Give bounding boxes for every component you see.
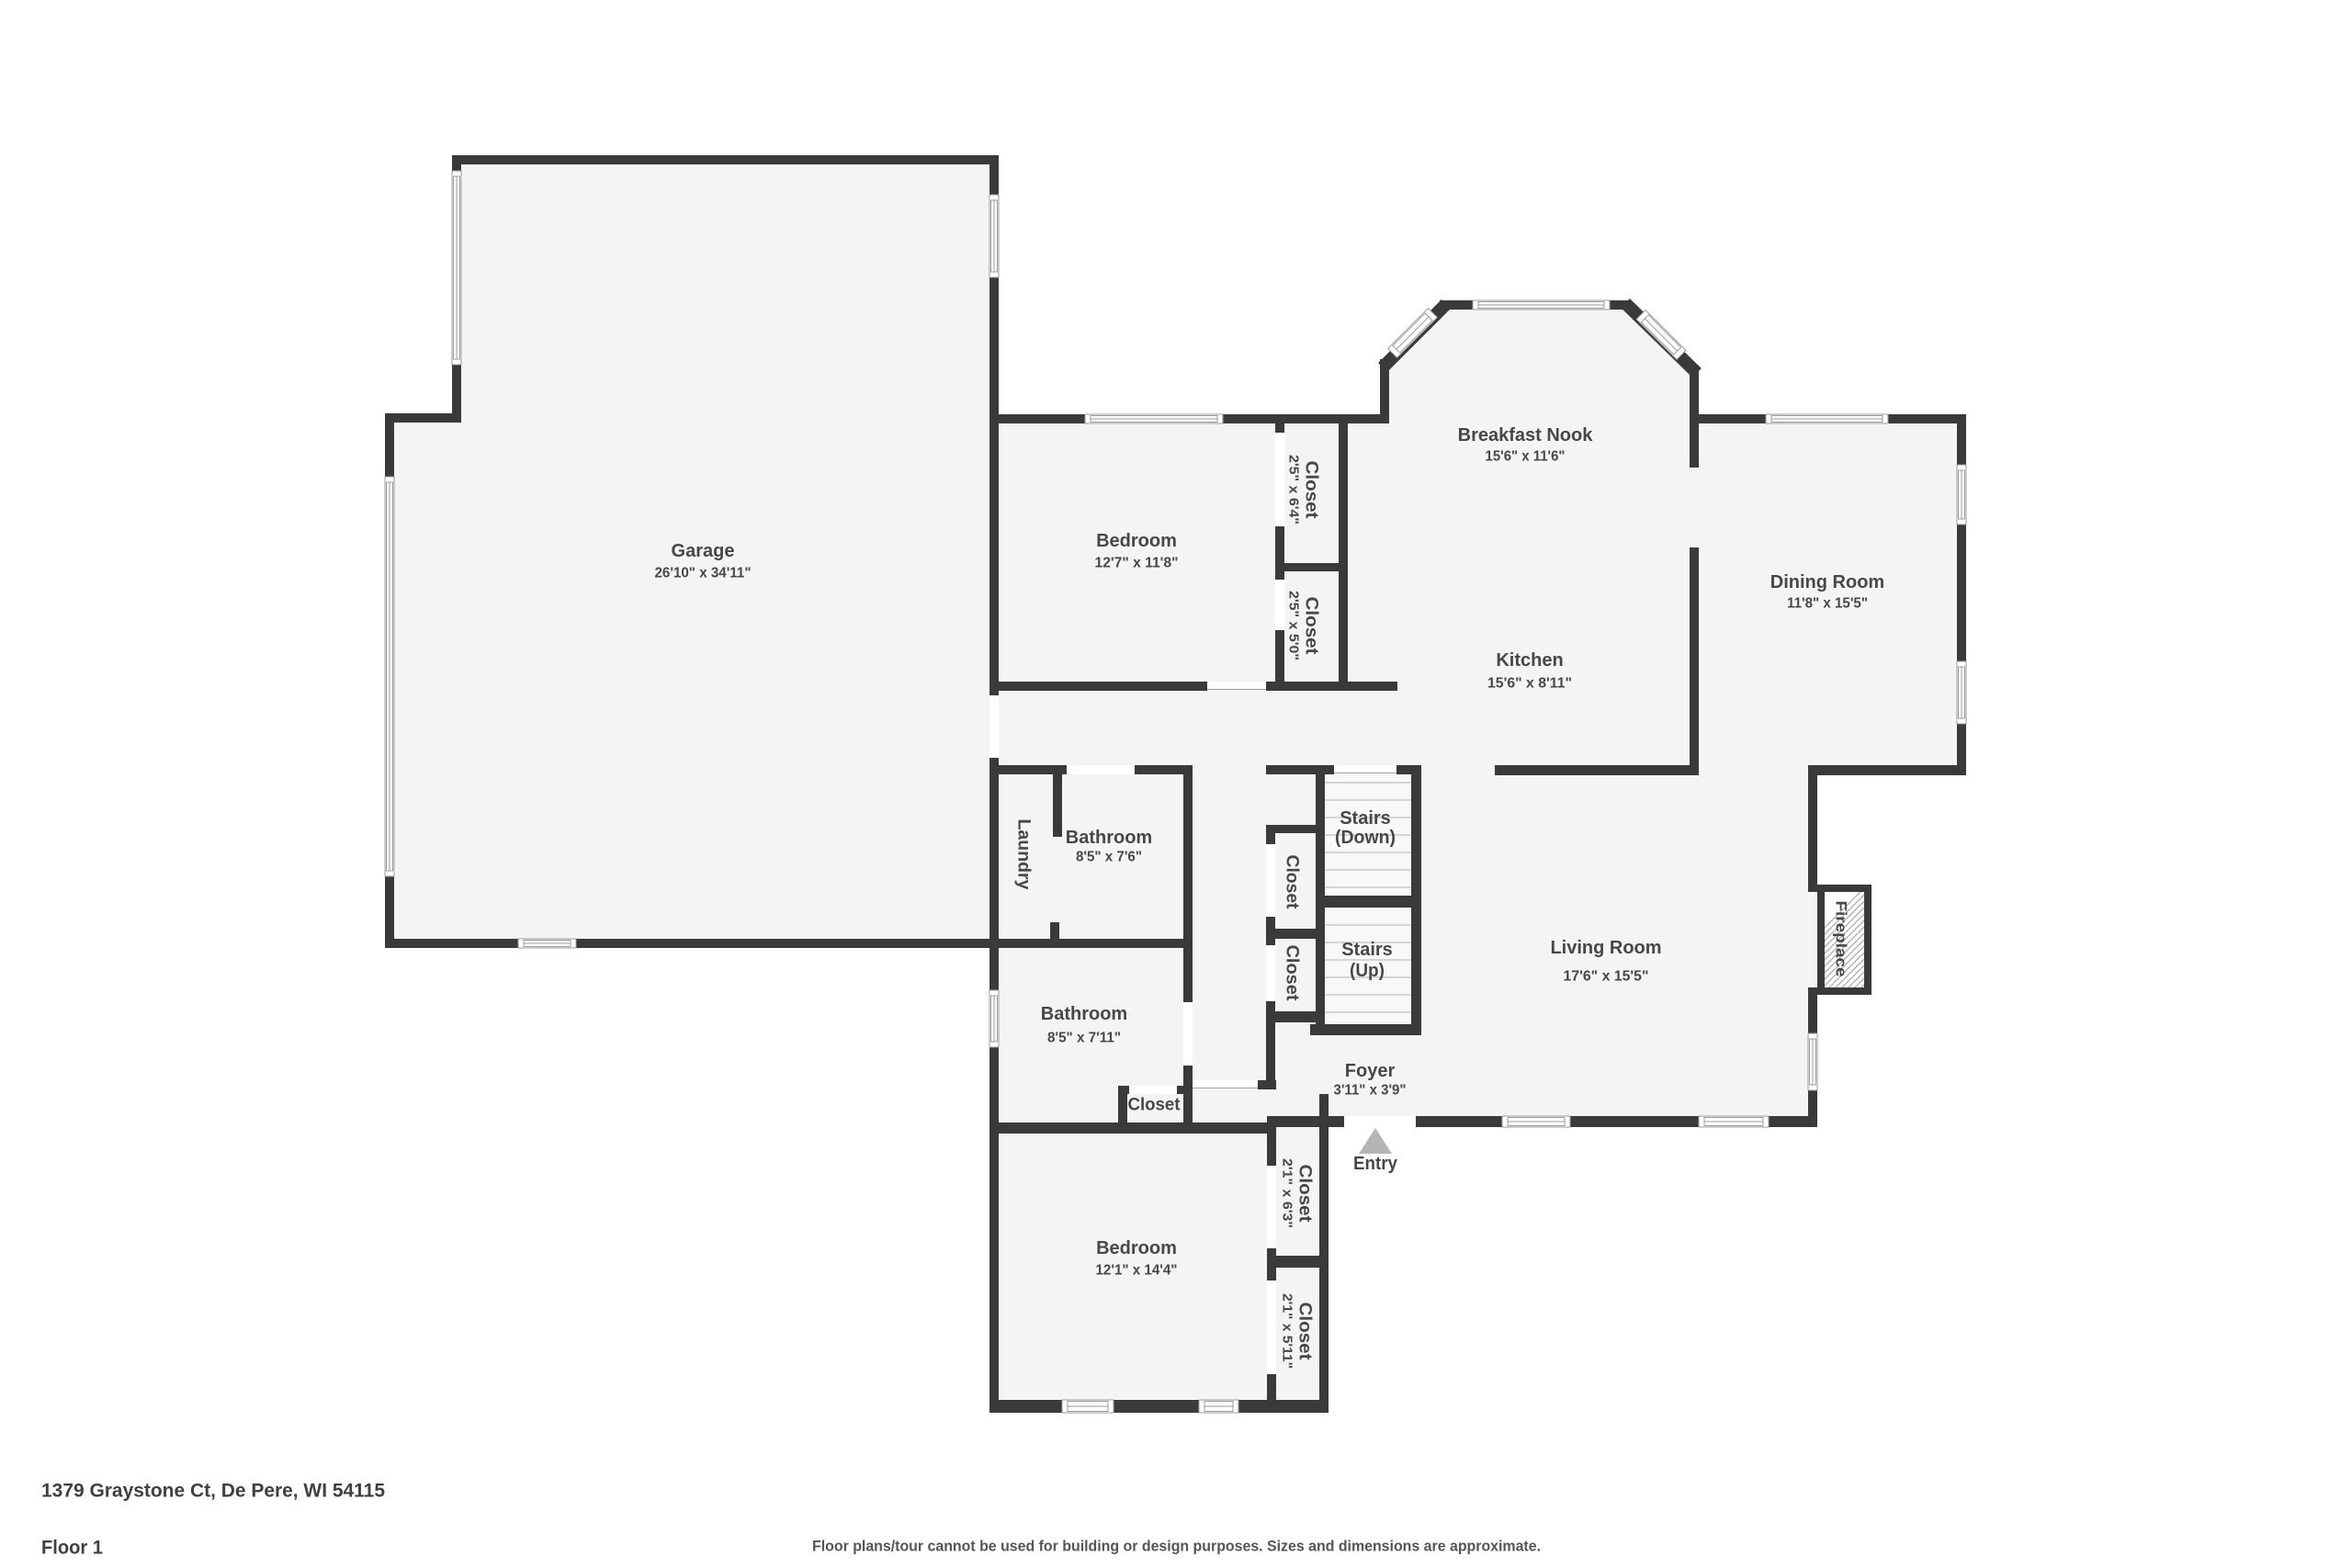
svg-text:8'5" x 7'6": 8'5" x 7'6" <box>1076 850 1142 865</box>
svg-text:2'1" x 6'3": 2'1" x 6'3" <box>1280 1158 1295 1228</box>
svg-text:Bedroom: Bedroom <box>1096 1238 1177 1258</box>
svg-text:15'6" x 8'11": 15'6" x 8'11" <box>1487 676 1572 692</box>
svg-text:Closet: Closet <box>1302 597 1321 656</box>
svg-text:Closet: Closet <box>1283 945 1302 1002</box>
svg-text:Closet: Closet <box>1295 1165 1315 1224</box>
svg-text:Stairs: Stairs <box>1341 940 1393 960</box>
svg-text:12'7" x 11'8": 12'7" x 11'8" <box>1095 556 1179 571</box>
svg-text:Laundry: Laundry <box>1014 819 1034 890</box>
svg-text:12'1" x 14'4": 12'1" x 14'4" <box>1096 1263 1178 1279</box>
svg-text:Floor plans/tour cannot be use: Floor plans/tour cannot be used for buil… <box>812 1538 1541 1555</box>
svg-text:1379 Graystone Ct, De Pere, WI: 1379 Graystone Ct, De Pere, WI 54115 <box>41 1481 385 1502</box>
svg-text:Foyer: Foyer <box>1345 1061 1396 1081</box>
svg-text:Dining Room: Dining Room <box>1770 572 1884 592</box>
svg-text:Floor 1: Floor 1 <box>41 1538 103 1559</box>
svg-text:(Up): (Up) <box>1350 961 1385 981</box>
svg-text:Stairs: Stairs <box>1340 808 1391 829</box>
svg-text:Bedroom: Bedroom <box>1096 531 1177 551</box>
svg-text:17'6" x 15'5": 17'6" x 15'5" <box>1564 969 1649 985</box>
svg-text:Entry: Entry <box>1353 1154 1398 1174</box>
svg-text:Breakfast Nook: Breakfast Nook <box>1458 425 1594 446</box>
svg-text:Bathroom: Bathroom <box>1066 828 1152 848</box>
svg-text:2'5" x 6'4": 2'5" x 6'4" <box>1286 455 1302 525</box>
svg-text:2'1" x 5'11": 2'1" x 5'11" <box>1280 1293 1295 1369</box>
svg-text:Closet: Closet <box>1128 1096 1182 1115</box>
svg-text:Garage: Garage <box>672 541 735 561</box>
svg-text:3'11" x 3'9": 3'11" x 3'9" <box>1334 1083 1407 1099</box>
svg-text:15'6" x 11'6": 15'6" x 11'6" <box>1486 449 1566 465</box>
svg-text:26'10" x 34'11": 26'10" x 34'11" <box>655 566 752 581</box>
svg-text:11'8" x 15'5": 11'8" x 15'5" <box>1787 596 1868 612</box>
svg-text:Living Room: Living Room <box>1550 938 1661 958</box>
svg-text:Bathroom: Bathroom <box>1041 1004 1127 1024</box>
svg-text:(Down): (Down) <box>1335 828 1396 848</box>
svg-text:Kitchen: Kitchen <box>1496 650 1563 671</box>
svg-text:Closet: Closet <box>1302 461 1321 520</box>
svg-text:Closet: Closet <box>1295 1303 1315 1361</box>
svg-text:Fireplace: Fireplace <box>1833 901 1850 977</box>
svg-text:8'5" x 7'11": 8'5" x 7'11" <box>1047 1031 1121 1046</box>
svg-text:Closet: Closet <box>1283 855 1302 910</box>
svg-text:2'5" x 5'0": 2'5" x 5'0" <box>1286 591 1302 660</box>
